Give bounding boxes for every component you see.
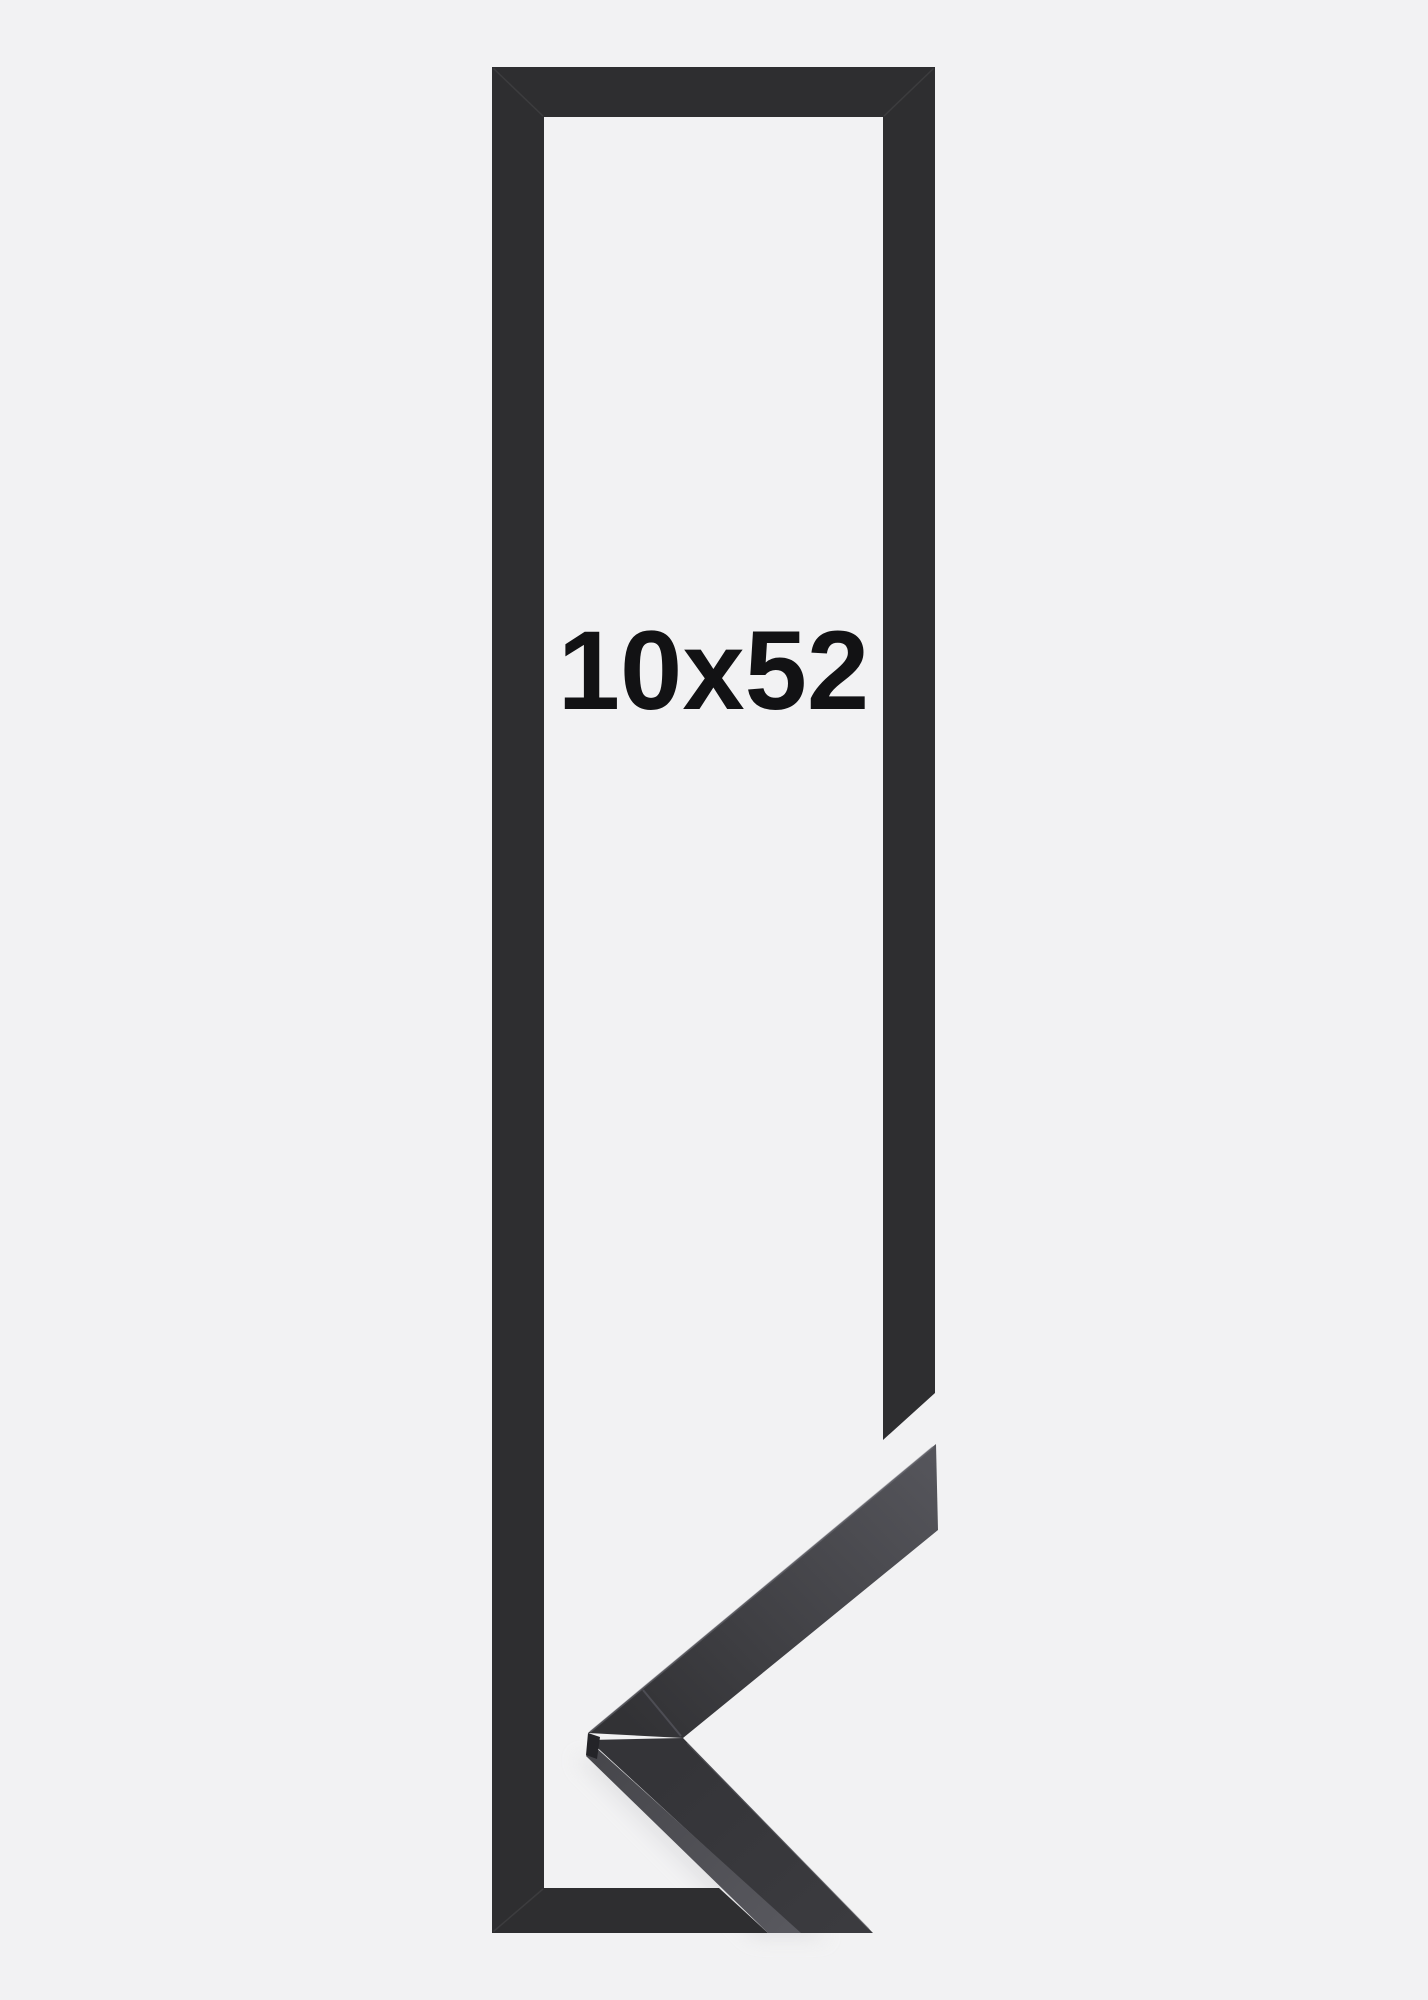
corner-sample-edge-highlight-upper — [590, 1447, 933, 1732]
frame-graphic — [0, 0, 1428, 2000]
size-label: 10x52 — [544, 615, 883, 727]
frame-right-bar — [883, 67, 935, 1440]
frame-left-bar — [492, 67, 544, 1933]
frame-top-bar — [492, 67, 935, 117]
corner-sample-upper-arm — [588, 1444, 938, 1738]
product-image: 10x52 — [0, 0, 1428, 2000]
